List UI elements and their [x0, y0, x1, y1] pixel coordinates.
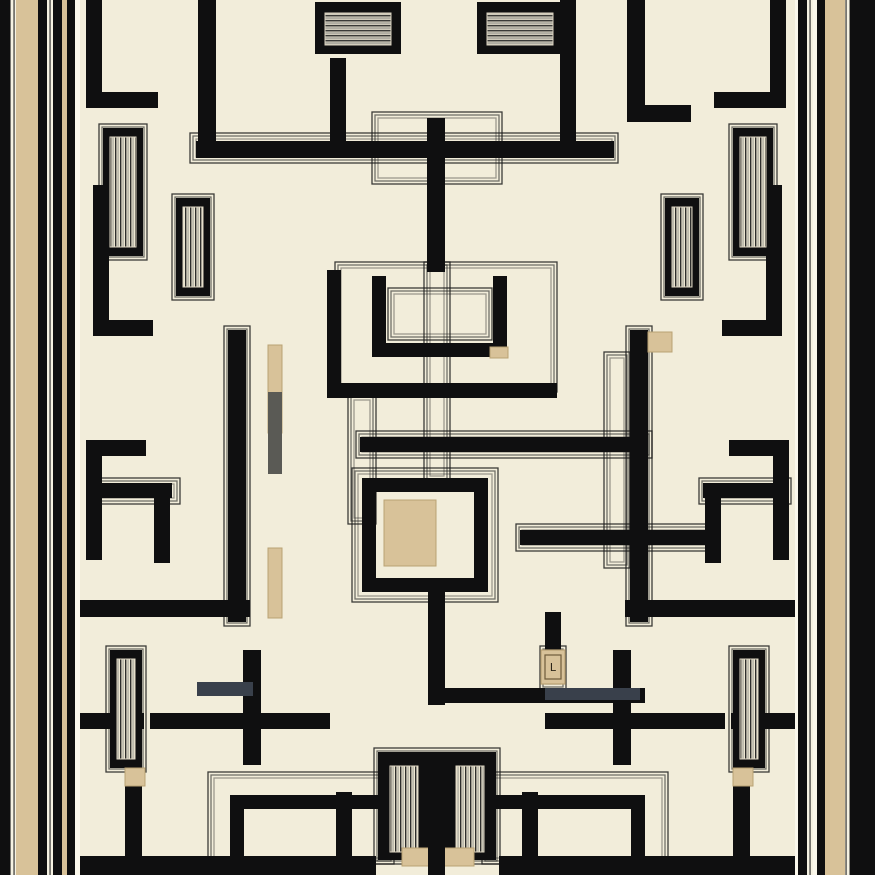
slate-accent: [197, 682, 253, 696]
maze-wall: [362, 478, 488, 492]
maze-wall: [360, 437, 648, 452]
maze-artwork: L: [0, 0, 875, 875]
hatch-block-inset: [487, 13, 553, 45]
maze-wall: [86, 92, 158, 108]
right-border-band-black: [817, 0, 825, 875]
maze-wall: [372, 343, 507, 357]
maze-wall: [495, 795, 645, 809]
slate-accent: [545, 688, 640, 700]
tan-accent: [648, 332, 672, 352]
maze-wall: [714, 92, 786, 108]
fluted-column-inset: [390, 766, 418, 852]
maze-wall: [230, 795, 380, 809]
right-border-band-black: [850, 0, 875, 875]
left-border-band-black: [53, 0, 62, 875]
hatch-block-inset: [325, 13, 391, 45]
maze-wall: [198, 0, 216, 158]
fluted-column-inset: [110, 137, 136, 247]
right-border-band-pin: [845, 0, 850, 875]
maze-wall: [125, 775, 142, 870]
fluted-column-inset: [740, 659, 758, 759]
left-border-band-tan: [16, 0, 38, 875]
right-border-band-cream: [795, 0, 798, 875]
maze-wall: [520, 530, 710, 545]
tan-accent: [490, 347, 508, 358]
maze-wall: [243, 650, 261, 765]
maze-wall: [80, 600, 250, 617]
maze-wall: [327, 383, 557, 398]
maze-wall: [150, 713, 330, 729]
maze-wall: [773, 440, 789, 560]
right-border-band-black: [798, 0, 807, 875]
maze-wall: [362, 578, 488, 592]
gray-accent: [268, 392, 282, 474]
maze-wall: [499, 856, 795, 875]
maze-wall: [631, 795, 645, 865]
maze-wall: [474, 492, 488, 592]
fluted-column-inset: [672, 207, 692, 287]
tan-accent: [125, 768, 145, 786]
maze-wall: [230, 795, 244, 865]
maze-wall: [80, 856, 376, 875]
maze-wall: [625, 600, 795, 617]
maze-wall: [729, 440, 789, 456]
maze-wall: [632, 437, 648, 545]
maze-wall: [428, 585, 445, 705]
tan-accent: [268, 548, 282, 618]
fluted-column-inset: [456, 766, 484, 852]
maze-canvas: L: [0, 0, 875, 875]
maze-wall: [330, 58, 346, 143]
maze-wall: [733, 775, 750, 870]
maze-wall: [522, 792, 538, 858]
maze-wall: [770, 0, 786, 108]
fluted-column-inset: [117, 659, 135, 759]
maze-wall: [613, 650, 631, 765]
left-border-band-cream: [75, 0, 80, 875]
left-border-band-pin: [47, 0, 53, 875]
maze-wall: [196, 141, 614, 158]
maze-wall: [722, 320, 782, 336]
maze-wall: [336, 792, 352, 858]
maze-wall: [327, 270, 341, 390]
left-border-band-black: [0, 0, 10, 875]
tan-accent: [733, 768, 753, 786]
maze-wall: [705, 483, 721, 563]
maze-wall: [228, 330, 246, 622]
maze-wall: [86, 0, 102, 108]
right-border-band-pin: [807, 0, 813, 875]
right-border-band-tan: [825, 0, 845, 875]
maze-wall: [86, 440, 102, 560]
maze-wall: [545, 713, 725, 729]
maze-wall: [154, 483, 170, 563]
left-border-band-black: [38, 0, 47, 875]
left-border-band-tan: [62, 0, 67, 875]
maze-wall: [627, 0, 645, 122]
fluted-column-inset: [740, 137, 766, 247]
maze-wall: [627, 105, 691, 122]
maze-wall: [93, 320, 153, 336]
maze-wall: [427, 118, 445, 272]
right-border-band-cream: [813, 0, 817, 875]
maze-wall: [362, 478, 376, 592]
plaque-glyph: L: [550, 661, 557, 674]
fluted-column-inset: [183, 207, 203, 287]
maze-wall: [86, 440, 146, 456]
tan-accent: [384, 500, 436, 566]
left-border-band-black: [67, 0, 75, 875]
maze-wall: [428, 845, 445, 875]
left-border-band-pin: [10, 0, 16, 875]
